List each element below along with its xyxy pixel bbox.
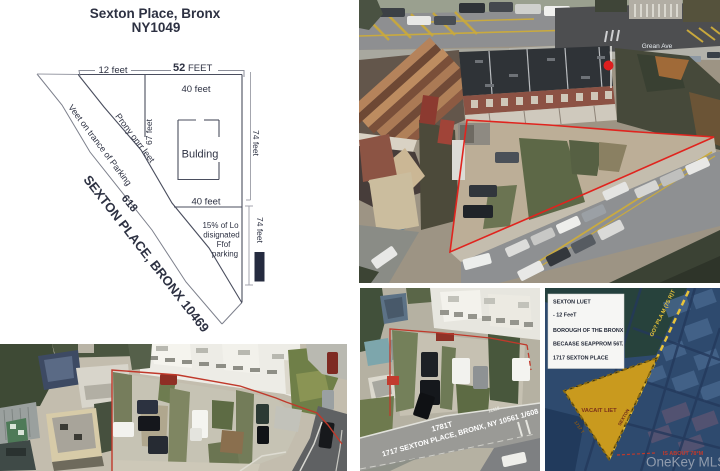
svg-text:SEXTON LUET: SEXTON LUET bbox=[553, 300, 591, 306]
svg-text:VACAIT LIET: VACAIT LIET bbox=[581, 408, 617, 414]
svg-text:74 feet: 74 feet bbox=[251, 130, 261, 157]
svg-text:Ffof: Ffof bbox=[217, 240, 232, 249]
svg-text:15% of Lo: 15% of Lo bbox=[202, 221, 239, 230]
svg-text:disignated: disignated bbox=[203, 231, 239, 240]
svg-text:Sexton Place, Bronx: Sexton Place, Bronx bbox=[90, 6, 221, 21]
svg-text:40 feet: 40 feet bbox=[191, 197, 220, 208]
svg-text:12 feet: 12 feet bbox=[98, 65, 127, 76]
svg-text:- 12 FeeT: - 12 FeeT bbox=[553, 313, 577, 319]
svg-text:parking: parking bbox=[212, 250, 238, 259]
svg-text:BOROUGH OF THE BRONX: BOROUGH OF THE BRONX bbox=[553, 328, 624, 334]
svg-text:67 feet: 67 feet bbox=[144, 118, 154, 145]
svg-text:NY1049: NY1049 bbox=[132, 20, 181, 35]
svg-text:OneKey MLS: OneKey MLS bbox=[646, 455, 720, 470]
svg-text:BECAASE SEAPPROM 56T.: BECAASE SEAPPROM 56T. bbox=[553, 342, 624, 348]
svg-text:Bulding: Bulding bbox=[182, 149, 219, 161]
svg-text:40 feet: 40 feet bbox=[181, 84, 210, 95]
svg-text:74 feet: 74 feet bbox=[255, 217, 265, 244]
svg-text:Grean Ave: Grean Ave bbox=[642, 43, 673, 50]
svg-text:1717 SEXTON PLACE: 1717 SEXTON PLACE bbox=[553, 356, 609, 362]
svg-text:FEET: FEET bbox=[188, 63, 212, 74]
svg-text:52: 52 bbox=[173, 62, 185, 74]
